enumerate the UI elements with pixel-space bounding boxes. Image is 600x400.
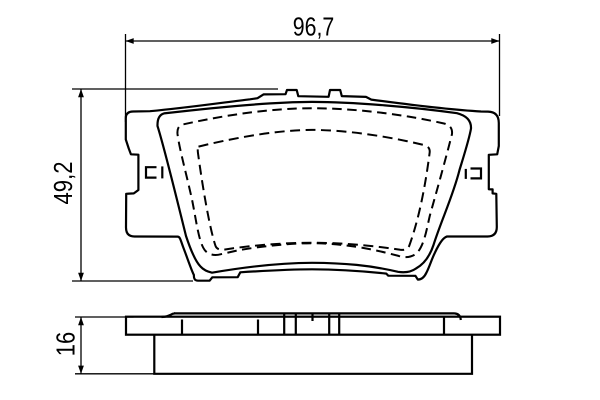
svg-text:16: 16 <box>53 332 81 357</box>
svg-text:49,2: 49,2 <box>50 162 78 205</box>
svg-text:96,7: 96,7 <box>293 13 335 41</box>
